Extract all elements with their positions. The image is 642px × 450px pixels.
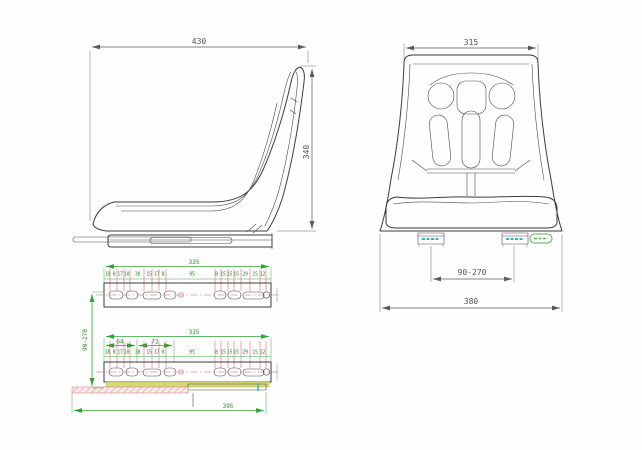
hole-dim: 38 bbox=[135, 272, 141, 278]
side-view: 430 340 bbox=[73, 37, 316, 249]
slide-hatch-strip bbox=[72, 387, 188, 393]
hole-dim: 38 bbox=[135, 350, 141, 356]
dim-extension-line bbox=[92, 292, 104, 388]
rail-length-dim-label: 325 bbox=[189, 259, 200, 266]
hole-dim: 15 bbox=[252, 272, 258, 278]
hole-dim: 18 bbox=[105, 350, 111, 356]
rail-hole bbox=[243, 292, 264, 299]
rail-span-dim-label: 90-270 bbox=[82, 329, 89, 351]
seat-trim-line bbox=[265, 72, 298, 226]
side-width-dim-label: 430 bbox=[192, 37, 207, 46]
backrest-stem bbox=[412, 160, 530, 196]
pattern-slot-left bbox=[428, 114, 451, 167]
hole-dim: 10 bbox=[124, 350, 130, 356]
dim-extension-line bbox=[90, 51, 308, 221]
mount-bracket-right bbox=[502, 233, 528, 247]
hole-dim: 8 bbox=[113, 272, 116, 278]
hole-dim: 17 bbox=[154, 350, 160, 356]
assembly-length-dim-label: 325 bbox=[189, 329, 200, 336]
seat-drawing-svg: 430 340 315 bbox=[0, 0, 642, 450]
mount-bracket-left bbox=[418, 233, 444, 247]
seat-back-notch bbox=[290, 98, 297, 114]
assembly-hole-dim-row: 18 8 17 10 38 15 17 8 95 8 15 15 15 29 1… bbox=[105, 350, 266, 356]
group-dim-right-label: 72 bbox=[151, 339, 159, 346]
hole-dim: 17 bbox=[117, 350, 123, 356]
pattern-slot-middle bbox=[462, 111, 480, 168]
hole-dim: 15 bbox=[252, 350, 258, 356]
hole-dim: 8 bbox=[113, 350, 116, 356]
side-height-dim-label: 340 bbox=[302, 145, 311, 160]
hole-dim: 8 bbox=[215, 272, 218, 278]
base-width-dim-label: 380 bbox=[464, 297, 479, 306]
backrest-pattern bbox=[428, 73, 515, 168]
seat-cushion bbox=[386, 196, 557, 228]
hole-dim: 29 bbox=[242, 350, 248, 356]
base-length-dim-label: 395 bbox=[223, 403, 234, 410]
hole-dim: 15 bbox=[146, 350, 152, 356]
front-view: 315 bbox=[380, 38, 562, 312]
slide-rail-tick bbox=[247, 224, 272, 249]
rail-hole bbox=[143, 292, 161, 299]
cushion-seam bbox=[393, 201, 549, 204]
seat-front-trim bbox=[398, 64, 544, 180]
pattern-lobe-left bbox=[428, 83, 454, 109]
hole-dim: 10 bbox=[124, 272, 130, 278]
seat-front-outline bbox=[380, 55, 562, 231]
hole-dim: 18 bbox=[105, 272, 111, 278]
hole-dim: 15 bbox=[227, 272, 233, 278]
seat-side-profile bbox=[93, 67, 304, 231]
pattern-lobe-right bbox=[489, 83, 515, 109]
slide-pad-strip bbox=[106, 382, 269, 387]
pattern-slot-right bbox=[491, 114, 514, 167]
bracket-tick bbox=[503, 244, 527, 247]
seat-trim-line bbox=[116, 72, 291, 206]
slide-lever bbox=[530, 234, 552, 243]
rail-top-view: 325 18 8 17 10 38 15 17 8 95 8 15 15 15 … bbox=[96, 259, 279, 307]
technical-drawing-canvas: 430 340 315 bbox=[0, 0, 642, 450]
hole-dim: 8 bbox=[162, 272, 165, 278]
hole-dim: 15 bbox=[146, 272, 152, 278]
hole-dim: 29 bbox=[242, 272, 248, 278]
hole-dim: 12 bbox=[260, 272, 266, 278]
rail-hole bbox=[143, 369, 161, 376]
rail-hole bbox=[243, 369, 264, 376]
hole-dim: 15 bbox=[227, 350, 233, 356]
seat-trim-line bbox=[121, 103, 277, 211]
pattern-center bbox=[457, 81, 486, 114]
mount-span-dim-label: 90-270 bbox=[458, 268, 487, 277]
hole-dim: 95 bbox=[189, 272, 195, 278]
hole-dim: 8 bbox=[215, 350, 218, 356]
hole-dim: 17 bbox=[154, 272, 160, 278]
hole-dim: 95 bbox=[189, 350, 195, 356]
rail-hole-dim-row: 18 8 17 10 38 15 17 8 95 8 15 15 15 29 1… bbox=[105, 272, 266, 278]
hole-dim: 12 bbox=[260, 350, 266, 356]
group-dim-left-label: 64 bbox=[116, 339, 124, 346]
hole-dim: 17 bbox=[117, 272, 123, 278]
hole-dim: 8 bbox=[162, 350, 165, 356]
rail-assembly-view: 325 64 72 18 8 17 10 38 15 17 8 95 8 15 … bbox=[72, 292, 279, 414]
front-width-dim-label: 315 bbox=[464, 38, 479, 47]
